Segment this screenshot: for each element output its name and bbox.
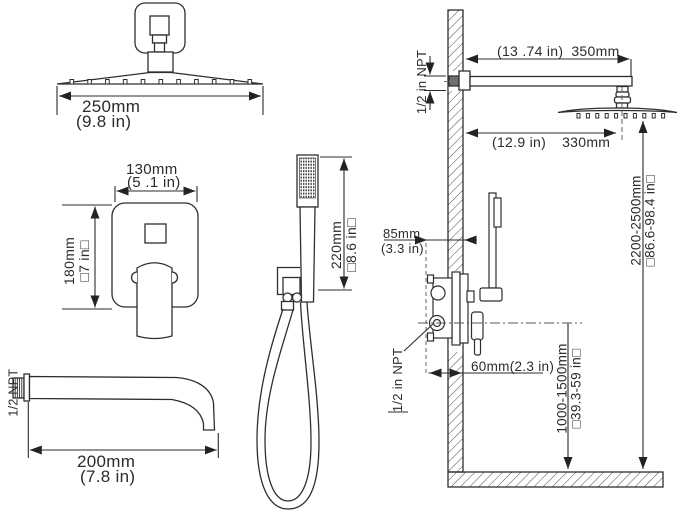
dim-label-valve-depth-in: (3.3 in)	[381, 241, 424, 256]
hose-connector	[282, 302, 294, 311]
dim-label-trim-height: 180mm □7 in□	[62, 206, 92, 316]
rain-shower-head-side-view	[57, 3, 263, 84]
wand-holder-connector	[467, 291, 474, 302]
dim-label-spout-offset: 60mm(2.3 in)	[471, 359, 554, 374]
dim-label-trim-width-in: (5 .1 in)	[127, 174, 181, 191]
dim-label-rain-head-in: (9.8 in)	[76, 112, 131, 132]
dim-label-head-height: 2200-2500mm □86.6-98.4 in□	[630, 155, 659, 285]
rain-head-profile	[558, 108, 677, 113]
rough-in-valve-side-view	[428, 193, 503, 355]
hand-shower-front-view	[257, 155, 319, 509]
lever-handle	[137, 263, 172, 339]
head-ball-joint	[616, 92, 629, 97]
label-arm-thread: 1/2 in NPT	[415, 42, 429, 122]
shower-arm-assembly	[444, 71, 677, 140]
dim-label-head-offset: (12.9 in)330mm	[492, 134, 610, 150]
arm-wall-thread	[449, 76, 459, 86]
spout-flange	[24, 374, 30, 401]
wand-holder-arm	[480, 288, 502, 301]
dim-label-spout-in: (7.8 in)	[80, 467, 135, 487]
dim-label-hand-shower-length: 220mm □8.6 in□	[329, 190, 359, 300]
head-connector-top	[617, 87, 628, 93]
head-connector-nut	[615, 97, 631, 103]
head-connector-cylinder	[148, 52, 173, 72]
rain-head-profile-nozzles	[577, 114, 665, 119]
diverter-button	[145, 224, 166, 243]
valve-rough-in-plate	[452, 272, 460, 345]
valve-pipe-stub-top	[428, 275, 434, 283]
valve-lever-tip	[475, 339, 481, 355]
valve-pipe-stub-bottom	[428, 333, 434, 341]
spout-length-dimension	[28, 402, 218, 458]
handle-pivot-left	[132, 272, 138, 283]
escutcheon-inner-square	[150, 16, 169, 35]
dim-label-arm-length: (13 .74 in)350mm	[497, 43, 620, 59]
dim-label-valve-height: 1000-1500mm □39.3-59 in□	[556, 323, 585, 453]
wall-bracket-holder	[283, 278, 300, 295]
hand-shower-handle	[300, 207, 315, 302]
hose-nut-left	[283, 293, 292, 302]
floor	[448, 472, 663, 487]
valve-inlet-port	[431, 286, 445, 300]
label-valve-thread: 1/2 in NPT	[391, 340, 405, 420]
label-spout-thread: 1/2 NPT	[7, 363, 20, 423]
shower-arm	[470, 77, 632, 87]
spout-body	[30, 377, 215, 431]
valve-trim-side	[460, 274, 468, 343]
hand-shower-spray-face	[300, 158, 316, 198]
shower-system-dimension-diagram: 250mm (9.8 in) 130mm (5 .1 in) 180mm □7 …	[0, 0, 679, 528]
valve-lever-side	[472, 312, 484, 340]
dim-label-valve-depth-mm: 85mm	[383, 226, 420, 241]
valve-trim-front-view	[112, 203, 198, 339]
arm-flange	[459, 71, 470, 90]
shower-hose-inner	[265, 302, 311, 501]
handle-pivot-right	[172, 272, 178, 283]
hose-nut-right	[293, 293, 302, 302]
tub-spout-side-view	[13, 374, 215, 430]
wand-head-side	[494, 198, 501, 227]
